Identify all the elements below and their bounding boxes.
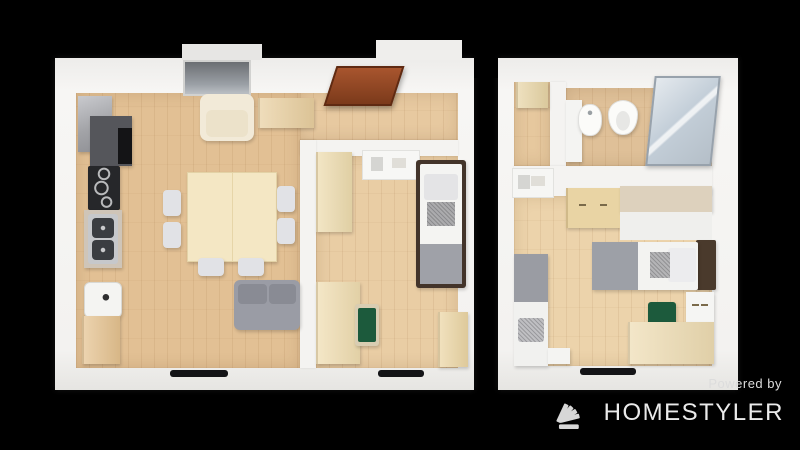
bed2-horizontal-cushion <box>650 252 670 278</box>
stage: Powered by HOMESTYLER <box>0 0 800 450</box>
bedroom1-chair-green <box>358 308 376 342</box>
armchair <box>200 94 254 141</box>
sofa-cushion-left <box>238 284 267 304</box>
bedroom2-counter-top <box>620 186 712 212</box>
wall-living-bedroom1 <box>300 140 316 368</box>
bedroom1-cabinet <box>438 312 468 367</box>
balcony-glass-door <box>183 60 251 96</box>
dining-chair-right-1 <box>277 186 295 212</box>
bedroom1-desk <box>316 282 360 364</box>
bedroom2-desk <box>628 322 714 364</box>
bed1-blanket <box>420 244 462 284</box>
bedroom2-counter-front <box>620 212 712 240</box>
dining-chair-bottom-1 <box>198 258 224 276</box>
window-bedroom2-bottom <box>580 368 636 375</box>
bedroom2-wall-shelf <box>512 168 554 198</box>
bed1-pillow <box>424 174 458 200</box>
brand-name: HOMESTYLER <box>604 399 784 427</box>
window-living-bottom <box>170 370 228 377</box>
wall-hall2-bathroom <box>550 82 566 166</box>
console-table <box>258 98 314 128</box>
unit-gap-notch <box>474 58 498 78</box>
window-bedroom1-bottom <box>378 370 424 377</box>
bedroom2-nightstand <box>686 292 714 322</box>
sink-basin-top <box>92 218 114 238</box>
unit2-hall-cabinet <box>516 82 548 108</box>
sofa-cushion-right <box>269 284 296 304</box>
bidet <box>578 104 602 136</box>
kitchen-wood-cabinet <box>82 316 120 364</box>
bed2-vertical-blanket <box>514 254 548 302</box>
balcony-door-top-block <box>182 44 262 60</box>
dining-chair-left-1 <box>163 190 181 216</box>
powered-by-text: Powered by <box>556 376 784 391</box>
dining-chair-bottom-2 <box>238 258 264 276</box>
bedroom2-dresser <box>566 188 620 228</box>
bed2-horizontal-pillow <box>668 248 696 282</box>
bed2-horizontal-headboard <box>696 240 716 290</box>
cooktop <box>88 166 120 210</box>
homestyler-logo-icon <box>556 396 594 430</box>
bedroom1-wall-shelf <box>362 150 420 180</box>
bed2-vertical-nightstand <box>548 348 570 364</box>
bed2-vertical-pillow <box>518 318 544 342</box>
bed1-cushion <box>427 202 455 226</box>
dining-chair-left-2 <box>163 222 181 248</box>
dining-table <box>187 172 277 262</box>
watermark: Powered by HOMESTYLER <box>556 376 784 430</box>
hall-closet-top-block <box>376 40 462 60</box>
washing-machine <box>84 282 122 318</box>
oven <box>118 128 132 164</box>
bedroom1-wardrobe <box>316 152 352 232</box>
bed2-horizontal-blanket <box>592 242 638 290</box>
brand-row: HOMESTYLER <box>556 396 784 430</box>
shower-enclosure <box>645 76 720 166</box>
dining-chair-right-2 <box>277 218 295 244</box>
sink-basin-bottom <box>92 240 114 260</box>
entry-door-unit1 <box>324 66 405 106</box>
